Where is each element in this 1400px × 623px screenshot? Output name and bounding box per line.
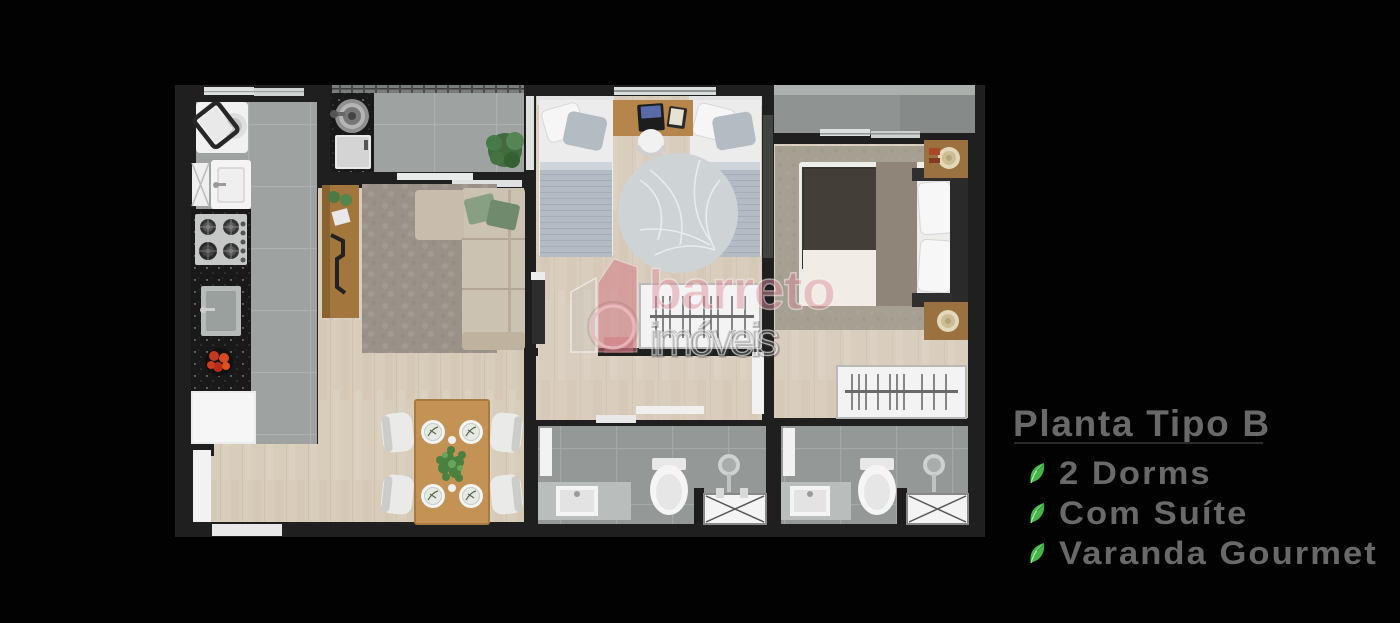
svg-text:imóveis: imóveis	[649, 313, 779, 365]
svg-text:barreto: barreto	[648, 258, 836, 321]
